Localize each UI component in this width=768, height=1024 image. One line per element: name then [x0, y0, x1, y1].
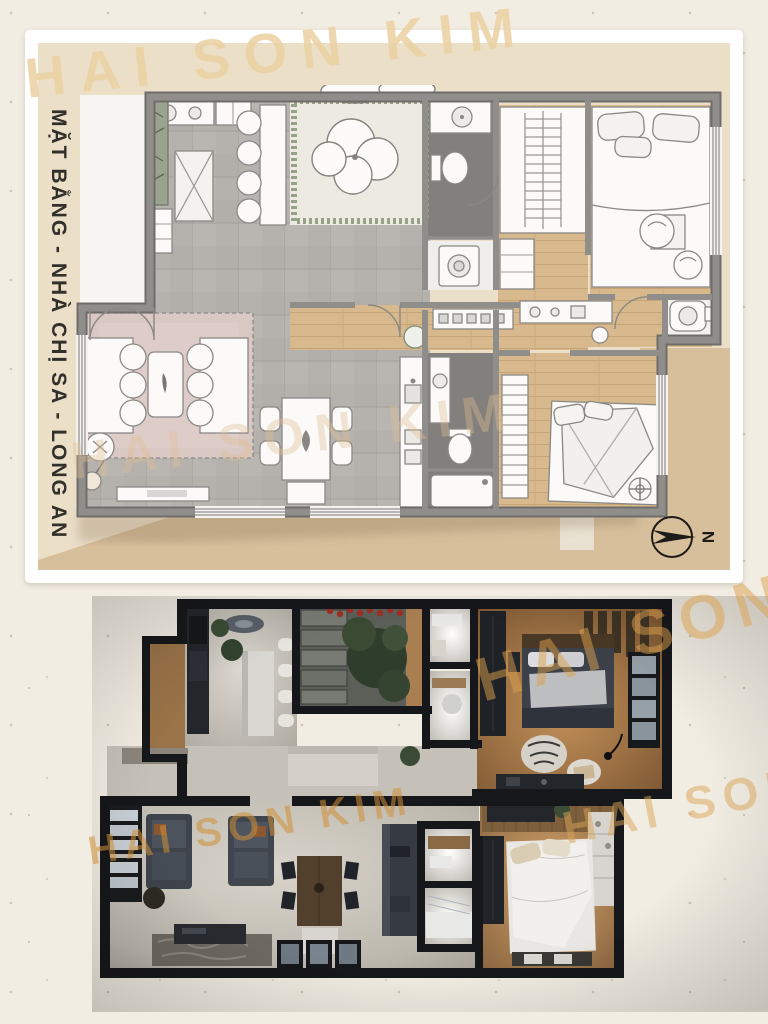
dining-chair — [332, 441, 352, 465]
window-bedroom2 — [656, 375, 668, 475]
compass-label: N — [699, 531, 718, 543]
window-left — [76, 335, 88, 455]
north-arrow-icon: N — [646, 509, 730, 567]
plan-board-panel: MẶT BẰNG - NHÀ CHỊ SA - LONG AN — [25, 30, 743, 583]
bean-bag — [640, 214, 674, 248]
sofa-left — [85, 338, 146, 433]
sink-counter — [430, 357, 450, 423]
floor-plan-2d — [55, 85, 730, 525]
window-bottom-right — [310, 506, 400, 518]
shoe-shelf — [433, 309, 513, 329]
utility-room — [439, 246, 479, 286]
dresser — [500, 239, 534, 289]
plan-board-background: MẶT BẰNG - NHÀ CHỊ SA - LONG AN — [38, 43, 730, 570]
round-mirror-icon — [629, 478, 651, 500]
bar-counter — [260, 105, 286, 225]
dining-chair — [332, 407, 352, 431]
toilet — [442, 152, 468, 184]
dining-chair — [260, 407, 280, 431]
window-bottom-left — [195, 506, 285, 518]
window-master — [710, 127, 722, 255]
sofa-right — [187, 338, 248, 433]
floor-plan-3d — [92, 596, 768, 1012]
screenshot-root: { "document": { "vertical_title": "MẶT B… — [0, 0, 768, 1024]
dining-chair — [260, 441, 280, 465]
toilet-tank — [431, 155, 441, 181]
toilet — [448, 434, 472, 464]
master-bedroom-furniture — [592, 107, 710, 287]
wardrobe2 — [502, 375, 528, 498]
bean-bag — [674, 251, 702, 279]
stool — [592, 327, 608, 343]
dining-bench — [287, 482, 325, 504]
vignette-overlay — [92, 596, 768, 1012]
coffee-table — [148, 352, 183, 417]
